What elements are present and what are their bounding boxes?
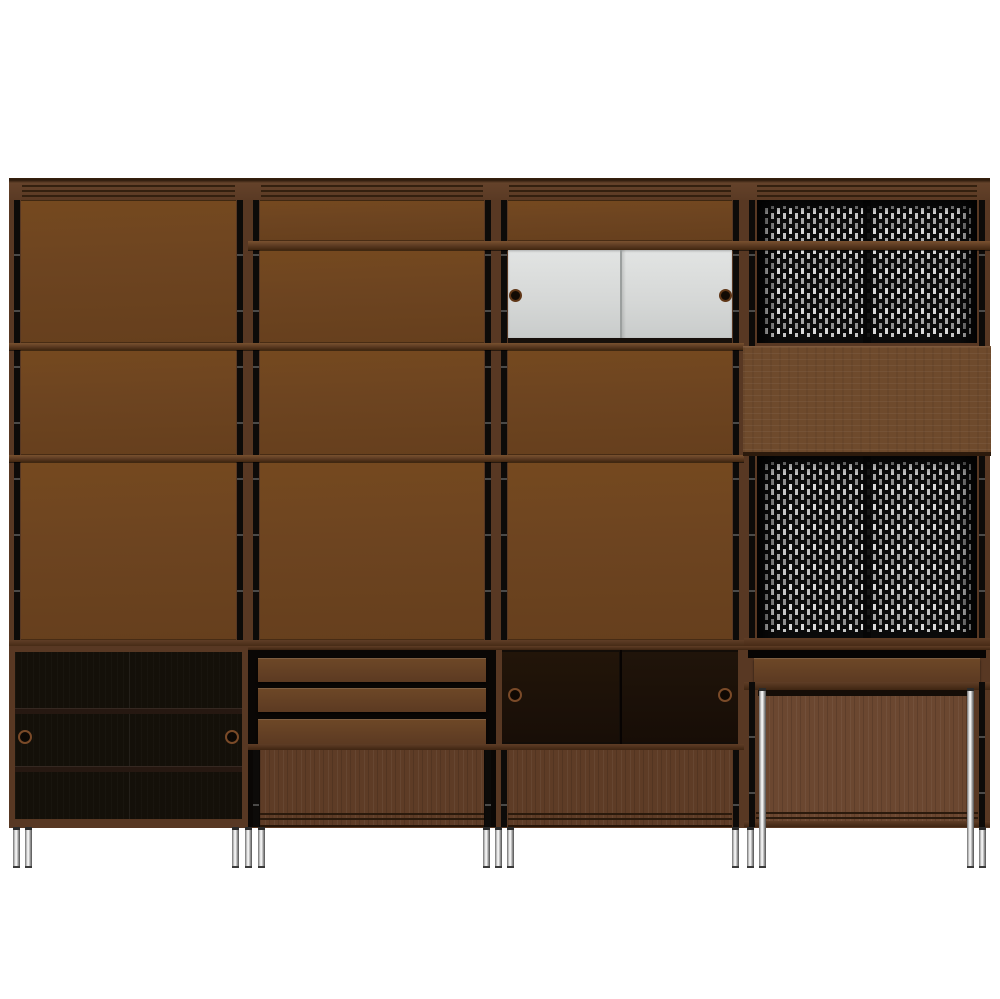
vent-groove xyxy=(261,195,483,197)
cabinet-top-rail xyxy=(744,638,990,646)
closed-panel xyxy=(260,200,484,241)
door-groove xyxy=(260,818,484,820)
shelf-band xyxy=(9,343,248,350)
drawer-front xyxy=(258,658,486,682)
fold-down-desk-panel xyxy=(743,346,991,456)
chrome-desk-leg xyxy=(759,688,766,868)
vent-groove xyxy=(757,190,977,192)
closed-panel xyxy=(21,462,236,640)
bay-2 xyxy=(248,178,496,828)
top-vent-rail xyxy=(9,178,248,200)
shelf-band xyxy=(496,343,744,350)
white-sliding-cabinet xyxy=(508,250,732,338)
cabinet-interior xyxy=(15,652,242,819)
sliding-wood-door xyxy=(508,750,732,827)
sliding-wood-door xyxy=(260,750,484,827)
vent-groove xyxy=(261,185,483,187)
interior-shelf xyxy=(15,708,242,714)
closed-panel xyxy=(21,200,236,343)
chrome-leg xyxy=(258,827,265,868)
chrome-leg xyxy=(747,827,754,868)
closed-panel xyxy=(260,250,484,343)
vent-groove xyxy=(509,195,731,197)
shelf-band xyxy=(744,241,990,250)
side-track xyxy=(485,200,491,640)
door-groove xyxy=(756,812,978,814)
drawer-cabinet xyxy=(248,646,496,827)
base-rail xyxy=(744,821,990,827)
door-divider xyxy=(129,652,130,819)
side-track xyxy=(733,200,739,640)
side-track xyxy=(253,750,259,827)
door-divider xyxy=(620,650,622,744)
recessed-knob xyxy=(509,289,522,302)
desk-back-panel xyxy=(764,696,966,821)
door-groove xyxy=(756,817,978,819)
chrome-leg xyxy=(232,827,239,868)
bay-1 xyxy=(9,178,248,828)
side-track xyxy=(485,750,491,827)
product-image xyxy=(0,0,1000,999)
desk-cabinet xyxy=(744,646,990,827)
top-vent-rail xyxy=(248,178,496,200)
shelf-band xyxy=(248,455,496,462)
chrome-leg xyxy=(245,827,252,868)
chrome-leg xyxy=(483,827,490,868)
vent-groove xyxy=(22,185,235,187)
closed-panel xyxy=(260,350,484,455)
drawer-front xyxy=(754,658,980,682)
shelf-band xyxy=(496,241,744,250)
side-track xyxy=(501,750,507,827)
drawer-gap xyxy=(748,650,986,658)
sliding-door-cabinet xyxy=(9,646,248,827)
open-sliding-cabinet xyxy=(496,646,744,827)
closed-panel xyxy=(21,350,236,455)
shelf-band xyxy=(496,455,744,462)
closed-panel xyxy=(508,200,732,241)
vent-groove xyxy=(509,190,731,192)
perforated-metal-panel xyxy=(757,200,977,343)
door-groove xyxy=(508,813,732,815)
cabinet-interior xyxy=(502,650,738,744)
side-track xyxy=(979,682,985,827)
ring-pull xyxy=(18,730,32,744)
bay-3 xyxy=(496,178,744,828)
chrome-leg xyxy=(507,827,514,868)
shelf-band xyxy=(248,241,496,250)
interior-shelf xyxy=(15,766,242,772)
panel-shading xyxy=(757,200,977,343)
top-vent-rail xyxy=(744,178,990,200)
side-track xyxy=(501,200,507,640)
vent-groove xyxy=(757,185,977,187)
vent-groove xyxy=(757,195,977,197)
door-groove xyxy=(508,818,732,820)
recessed-knob xyxy=(719,289,732,302)
cabinet-frame xyxy=(248,646,496,650)
chrome-leg xyxy=(25,827,32,868)
top-vent-rail xyxy=(496,178,744,200)
chrome-leg xyxy=(979,827,986,868)
vent-groove xyxy=(509,185,731,187)
closed-panel xyxy=(508,350,732,455)
white-door-divider xyxy=(620,250,622,338)
vent-groove xyxy=(22,190,235,192)
side-track xyxy=(253,200,259,640)
closed-panel xyxy=(508,462,732,640)
panel-shading xyxy=(757,456,977,638)
desk-top-rail xyxy=(744,682,990,690)
closed-panel xyxy=(260,462,484,640)
vent-groove xyxy=(22,195,235,197)
chrome-leg xyxy=(495,827,502,868)
side-track xyxy=(749,682,755,827)
door-groove xyxy=(260,813,484,815)
drawer-front xyxy=(258,688,486,712)
vent-groove xyxy=(261,190,483,192)
side-track xyxy=(237,200,243,640)
chrome-leg xyxy=(732,827,739,868)
ring-pull xyxy=(508,688,522,702)
shelf-band xyxy=(248,343,496,350)
chrome-leg xyxy=(13,827,20,868)
ring-pull xyxy=(718,688,732,702)
side-track xyxy=(14,200,20,640)
drawer-front xyxy=(258,719,486,744)
ring-pull xyxy=(225,730,239,744)
bay-4 xyxy=(744,178,990,828)
wall-unit xyxy=(9,178,990,828)
chrome-desk-leg xyxy=(967,688,974,868)
perforated-metal-panel xyxy=(757,456,977,638)
shelf-band xyxy=(9,455,248,462)
side-track xyxy=(733,750,739,827)
